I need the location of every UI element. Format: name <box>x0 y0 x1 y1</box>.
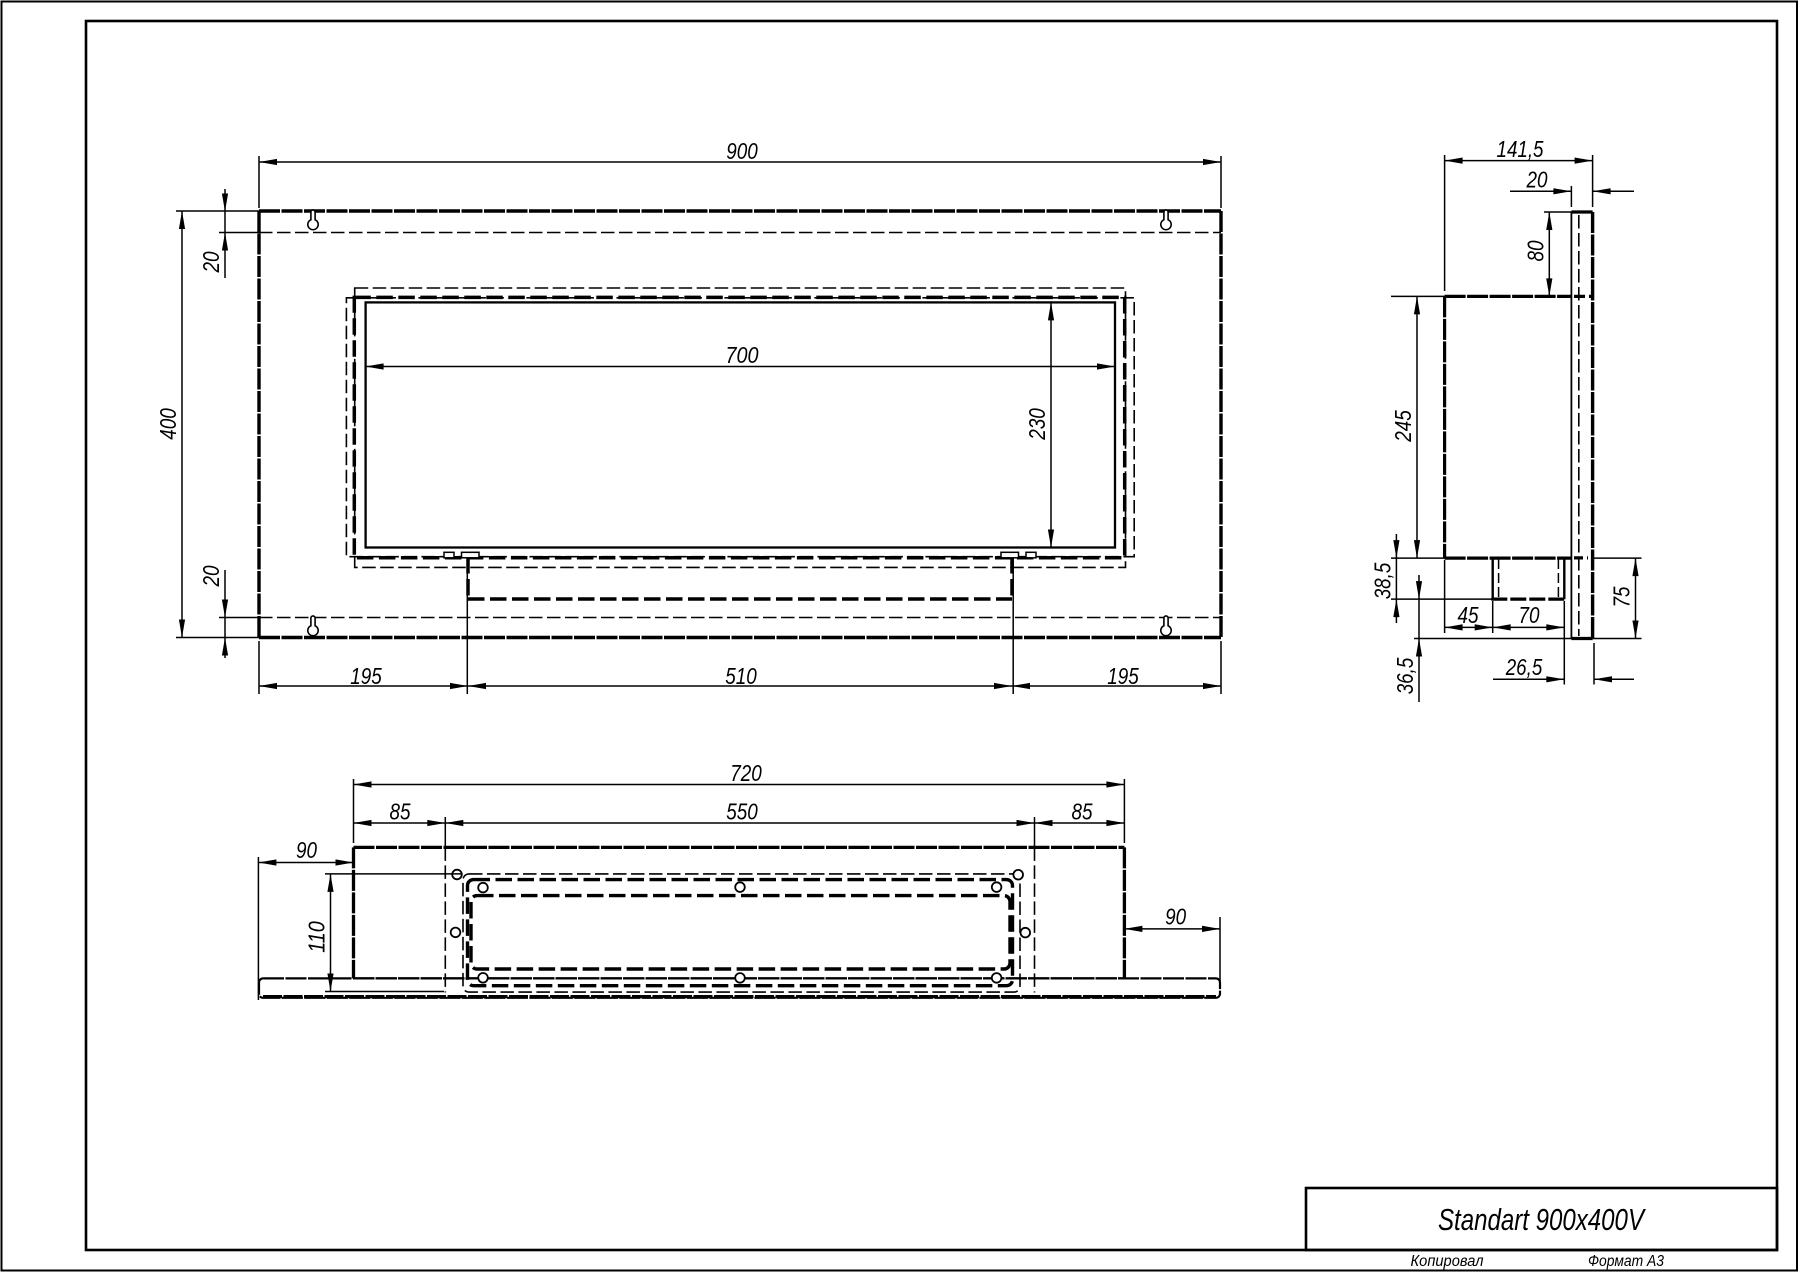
svg-text:90: 90 <box>296 837 317 863</box>
svg-text:36,5: 36,5 <box>1392 658 1418 695</box>
svg-text:Формат А3: Формат А3 <box>1588 1253 1664 1270</box>
svg-text:900: 900 <box>726 138 758 164</box>
svg-text:45: 45 <box>1458 602 1479 628</box>
svg-text:141,5: 141,5 <box>1497 136 1544 162</box>
svg-text:195: 195 <box>1107 663 1139 689</box>
svg-text:20: 20 <box>198 565 224 587</box>
svg-text:400: 400 <box>155 408 181 440</box>
svg-text:110: 110 <box>304 921 330 953</box>
svg-text:195: 195 <box>350 663 382 689</box>
svg-text:Копировал: Копировал <box>1411 1253 1484 1270</box>
svg-text:230: 230 <box>1024 408 1050 440</box>
svg-text:85: 85 <box>390 799 411 825</box>
svg-text:26,5: 26,5 <box>1505 654 1542 680</box>
svg-text:Standart 900x400V: Standart 900x400V <box>1438 1202 1647 1237</box>
svg-text:510: 510 <box>725 663 757 689</box>
svg-text:20: 20 <box>1526 167 1548 193</box>
svg-text:20: 20 <box>198 251 224 273</box>
svg-text:550: 550 <box>726 799 758 825</box>
svg-text:700: 700 <box>726 342 759 368</box>
svg-text:720: 720 <box>730 760 762 786</box>
svg-text:70: 70 <box>1519 602 1540 628</box>
svg-text:245: 245 <box>1390 410 1416 442</box>
svg-text:85: 85 <box>1072 799 1093 825</box>
svg-text:38,5: 38,5 <box>1370 563 1396 600</box>
svg-text:75: 75 <box>1609 586 1635 607</box>
svg-text:90: 90 <box>1165 904 1186 930</box>
svg-text:80: 80 <box>1523 240 1549 261</box>
